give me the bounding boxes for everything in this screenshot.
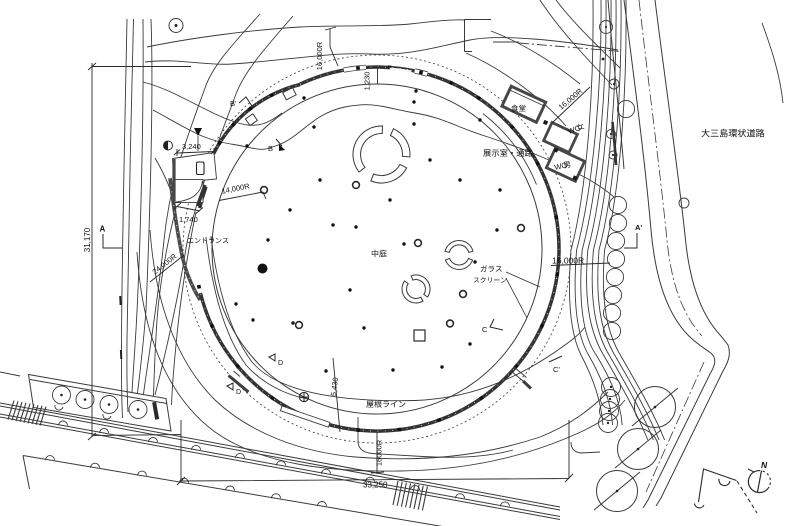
svg-text:1,740: 1,740 — [179, 215, 198, 224]
svg-text:D: D — [236, 389, 241, 396]
svg-text:16,000R: 16,000R — [552, 256, 584, 266]
svg-text:C: C — [482, 325, 488, 334]
svg-text:1,230: 1,230 — [363, 72, 372, 91]
svg-text:B: B — [268, 144, 273, 153]
svg-text:33,250: 33,250 — [363, 481, 388, 490]
svg-text:A: A — [100, 225, 106, 234]
svg-text:D: D — [278, 360, 283, 367]
svg-text:N: N — [761, 460, 768, 470]
svg-text:3,240: 3,240 — [182, 142, 201, 151]
svg-text:31,170: 31,170 — [83, 227, 92, 252]
svg-text:16000R: 16000R — [375, 439, 384, 466]
svg-text:A': A' — [635, 223, 642, 232]
svg-text:16,000R: 16,000R — [315, 41, 324, 70]
svg-text:C': C' — [553, 365, 560, 374]
svg-text:B': B' — [230, 99, 237, 108]
